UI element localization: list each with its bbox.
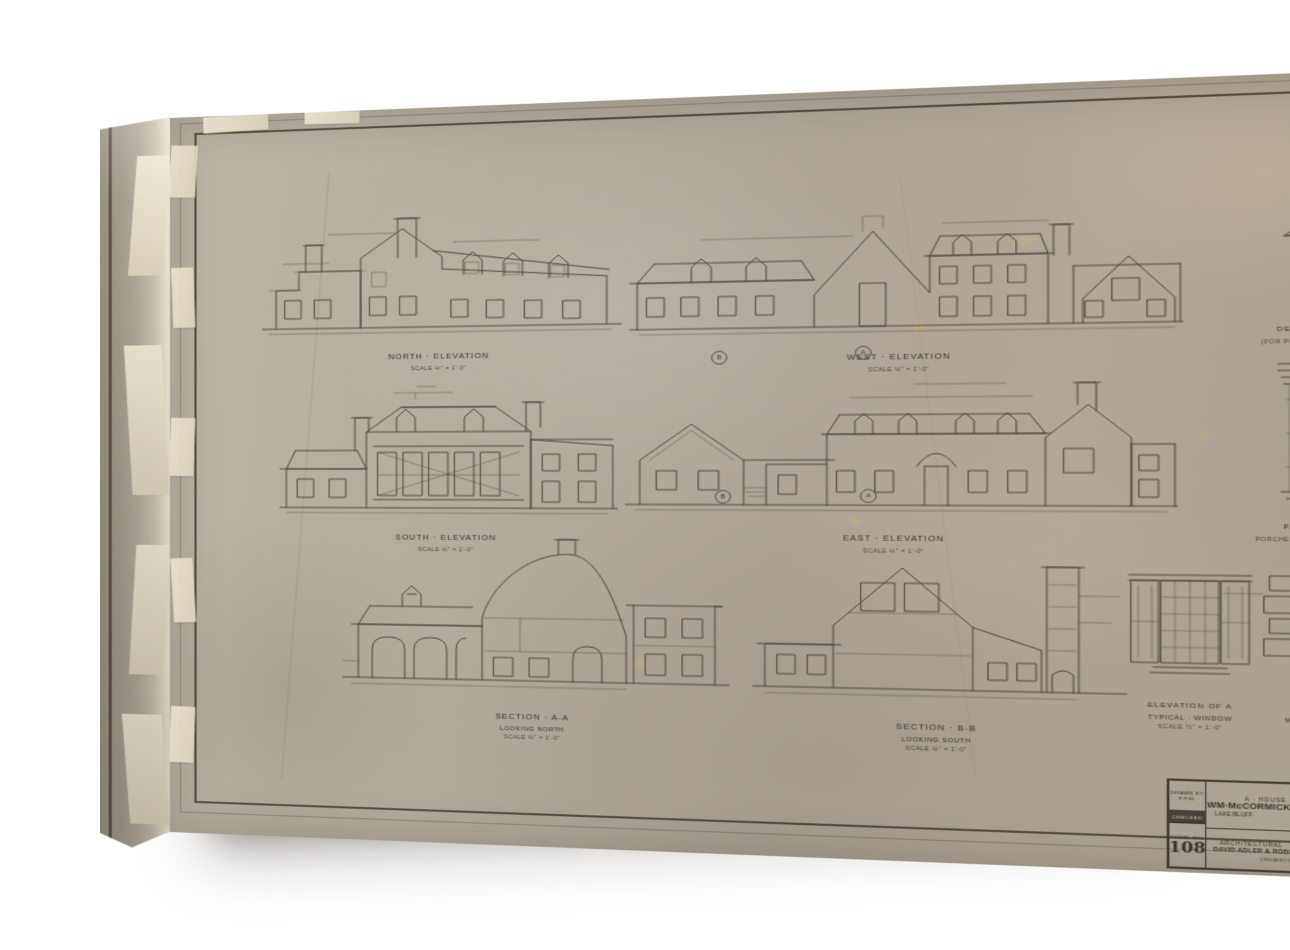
figure-main-doorway: ELEVATION OF MAIN · ENTRANCE · DOORWAY S… [1255, 556, 1290, 740]
section-marker-b: B [715, 490, 731, 504]
figure-note: (FOR POSITIONS SEE ELEVATIONS) [1261, 338, 1290, 348]
north-elevation-drawing [260, 206, 623, 342]
figure-caption: SECTION · B-B LOOKING SOUTH SCALE ⅛" = 1… [896, 712, 977, 756]
tape-patch [128, 155, 170, 276]
firm-cell: ARCHITECTURAL · OFFICE · OF DAVID ADLER … [1206, 829, 1290, 874]
figure-caption: SECTION · A-A LOOKING NORTH SCALE ⅛" = 1… [495, 702, 569, 744]
tape-patch [170, 558, 196, 623]
figure-porch-elevation: PART ELEVATION OF PORCHES ON EAST & WEST… [1264, 353, 1290, 554]
drawing-sheet: NORTH · ELEVATION SCALE ⅛" = 1'-0" [170, 67, 1290, 883]
tape-patch [171, 267, 195, 328]
title-block-left-column: DRAWN BY F.P.M. CHECKED COMM. NO. 108 [1169, 781, 1206, 868]
title-block: DRAWN BY F.P.M. CHECKED COMM. NO. 108 A … [1167, 778, 1290, 877]
figure-dormer-detail: DETAIL of A DORMER (FOR POSITIONS SEE EL… [1264, 199, 1290, 356]
figure-section-aa: SECTION · A-A LOOKING NORTH SCALE ⅛" = 1… [339, 534, 734, 748]
tape-patch [129, 545, 169, 675]
section-marker-a: A [860, 489, 877, 503]
section-aa-drawing [342, 534, 730, 704]
figure-section-bb: SECTION · B-B LOOKING SOUTH SCALE ⅛" = 1… [749, 550, 1132, 760]
tape-patch [170, 145, 198, 197]
main-doorway-drawing [1259, 556, 1290, 692]
figure-caption: ELEVATION OF A TYPICAL · WINDOW SCALE ½"… [1148, 689, 1233, 734]
section-marker-label: A [866, 493, 871, 499]
tape-patch [122, 714, 170, 825]
figure-label: SECTION · A-A [495, 713, 569, 722]
tape-patch [170, 706, 195, 763]
figure-scale: SCALE ⅛" = 1'-0" [388, 365, 489, 374]
dormer-detail-drawing [1273, 199, 1290, 310]
product-photo: NORTH · ELEVATION SCALE ⅛" = 1'-0" [0, 0, 1290, 950]
figure-label: EAST · ELEVATION [843, 535, 944, 543]
figure-west-elevation: WEST · ELEVATION SCALE ⅛" = 1'-0" [625, 194, 1189, 377]
west-elevation-drawing [627, 194, 1185, 342]
figure-caption: NORTH · ELEVATION SCALE ⅛" = 1'-0" [388, 341, 489, 374]
section-marker-b: B [711, 351, 727, 365]
porch-elevation-drawing [1270, 353, 1290, 508]
figure-caption: ELEVATION OF MAIN · ENTRANCE · DOORWAY S… [1285, 692, 1290, 739]
figure-east-elevation: EAST · ELEVATION SCALE ⅛" = 1'-0" [623, 370, 1181, 559]
figure-north-elevation: NORTH · ELEVATION SCALE ⅛" = 1'-0" [257, 206, 627, 376]
canvas-side-edge [100, 115, 170, 849]
section-marker-label: A [861, 349, 866, 356]
figure-label: SECTION · B-B [896, 724, 977, 734]
commission-number: 108 [1169, 840, 1206, 856]
typical-window-drawing [1115, 555, 1266, 689]
location-city: LAKE·BLUFF [1215, 811, 1253, 818]
figure-typical-window: ELEVATION OF A TYPICAL · WINDOW SCALE ½"… [1110, 555, 1272, 735]
tape-patch [170, 418, 195, 477]
figure-label: NORTH · ELEVATION [388, 353, 489, 362]
figure-caption: DETAIL of A DORMER (FOR POSITIONS SEE EL… [1261, 311, 1290, 356]
figure-caption: PART ELEVATION OF PORCHES ON EAST & WEST… [1255, 511, 1290, 555]
title-block-center-column: A · HOUSE · FOR WM·McCORMICK·BLAIR·ESQ L… [1206, 782, 1290, 874]
section-marker-label: B [720, 494, 725, 500]
figure-label: ELEVATION OF A [1148, 702, 1233, 711]
project-cell: A · HOUSE · FOR WM·McCORMICK·BLAIR·ESQ L… [1206, 782, 1290, 834]
checked-label: CHECKED [1172, 814, 1203, 821]
gallery-canvas: NORTH · ELEVATION SCALE ⅛" = 1'-0" [170, 67, 1290, 883]
figure-label: DETAIL of A DORMER [1277, 325, 1290, 333]
drawn-by-value: F.P.M. [1179, 795, 1196, 801]
tape-patch [304, 111, 359, 125]
south-elevation-drawing [280, 381, 618, 522]
project-location: LAKE·BLUFF ILLINOIS [1215, 811, 1290, 821]
drawn-by-cell: DRAWN BY F.P.M. [1169, 781, 1205, 812]
figure-scale: SCALE ½" = 1'-0" [1255, 545, 1290, 554]
section-marker-label: B [717, 355, 722, 361]
east-elevation-drawing [625, 370, 1178, 521]
commission-number-cell: COMM. NO. 108 [1169, 823, 1205, 868]
section-bb-drawing [752, 550, 1127, 715]
firm-city: CHICAGO ILL. [1260, 856, 1290, 863]
figure-south-elevation: SOUTH · ELEVATION SCALE ⅛" = 1'-0" [277, 380, 620, 556]
tape-patch [124, 345, 170, 495]
figure-label: PART ELEVATION OF [1283, 524, 1290, 531]
